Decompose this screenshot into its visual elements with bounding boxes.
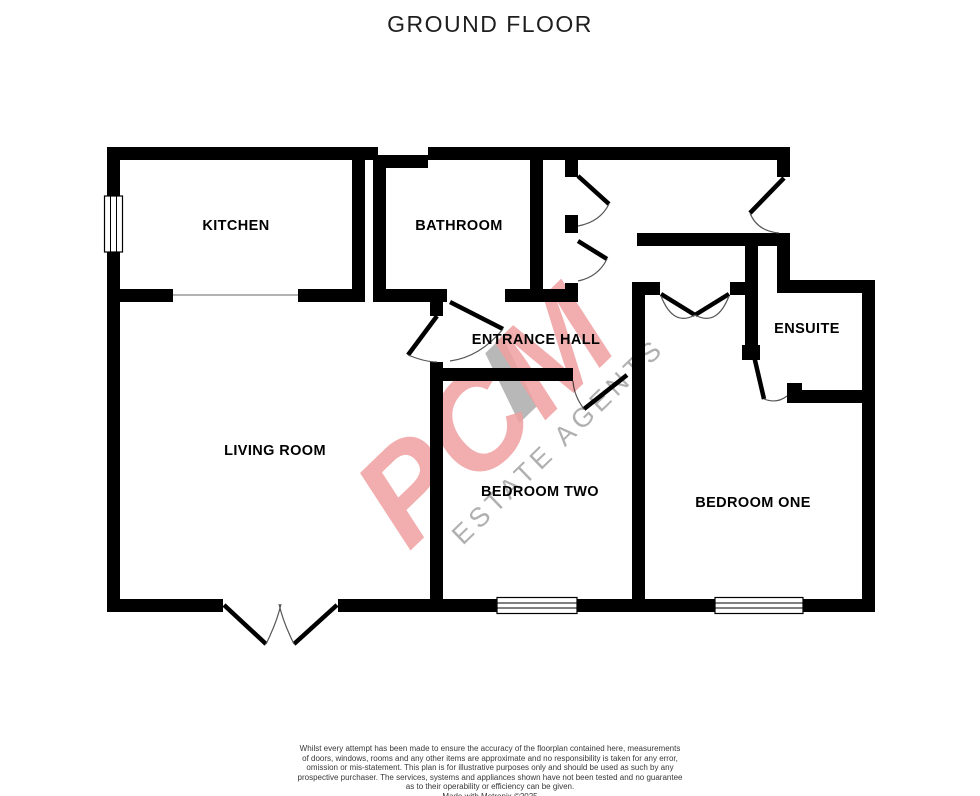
wall: [430, 302, 443, 316]
room-label-bathroom: BATHROOM: [415, 218, 503, 234]
wall: [352, 160, 365, 302]
door-patio-double: [224, 604, 337, 644]
window-bedroom-one: [715, 598, 803, 614]
disclaimer-line: prospective purchaser. The services, sys…: [0, 773, 980, 783]
wall: [373, 160, 386, 302]
room-label-ensuite: ENSUITE: [774, 321, 840, 337]
wall: [637, 233, 790, 246]
wall: [777, 147, 790, 177]
door-cupboard-top: [578, 176, 609, 226]
door-cupboard-bottom: [578, 241, 607, 281]
wall: [430, 362, 443, 612]
disclaimer-line: omission or mis-statement. This plan is …: [0, 763, 980, 773]
disclaimer: Whilst every attempt has been made to en…: [0, 744, 980, 796]
wall: [530, 160, 543, 302]
door-living-room: [408, 316, 437, 362]
room-label-bedroom-two: BEDROOM TWO: [481, 484, 599, 500]
wall: [745, 293, 758, 352]
wall: [107, 147, 378, 160]
wall: [565, 283, 578, 302]
wall: [787, 390, 862, 403]
wall: [862, 280, 875, 612]
room-label-living-room: LIVING ROOM: [224, 443, 326, 459]
floorplan-page: GROUND FLOOR: [0, 0, 980, 796]
wall: [430, 368, 573, 381]
disclaimer-credit: Made with Metropix ©2025: [0, 792, 980, 796]
wall: [120, 289, 173, 302]
wall: [107, 599, 223, 612]
wall: [632, 282, 645, 612]
disclaimer-line: as to their operability or efficiency ca…: [0, 782, 980, 792]
floorplan-drawing: [0, 0, 980, 796]
wall: [742, 345, 760, 360]
wall: [565, 160, 578, 177]
room-label-entrance-hall: ENTRANCE HALL: [472, 332, 600, 348]
wall: [298, 289, 365, 302]
window-left: [105, 196, 123, 252]
disclaimer-line: Whilst every attempt has been made to en…: [0, 744, 980, 754]
door-front: [750, 178, 784, 233]
wall: [565, 215, 578, 233]
door-ensuite: [754, 356, 787, 401]
door-bedroom-two: [573, 375, 627, 409]
wall: [777, 280, 875, 293]
wall: [428, 147, 790, 160]
room-label-kitchen: KITCHEN: [202, 218, 269, 234]
window-bedroom-two: [497, 598, 577, 614]
disclaimer-line: of doors, windows, rooms and any other i…: [0, 754, 980, 764]
door-bedroom-one-double: [661, 294, 729, 318]
wall: [373, 289, 447, 302]
room-label-bedroom-one: BEDROOM ONE: [695, 495, 811, 511]
